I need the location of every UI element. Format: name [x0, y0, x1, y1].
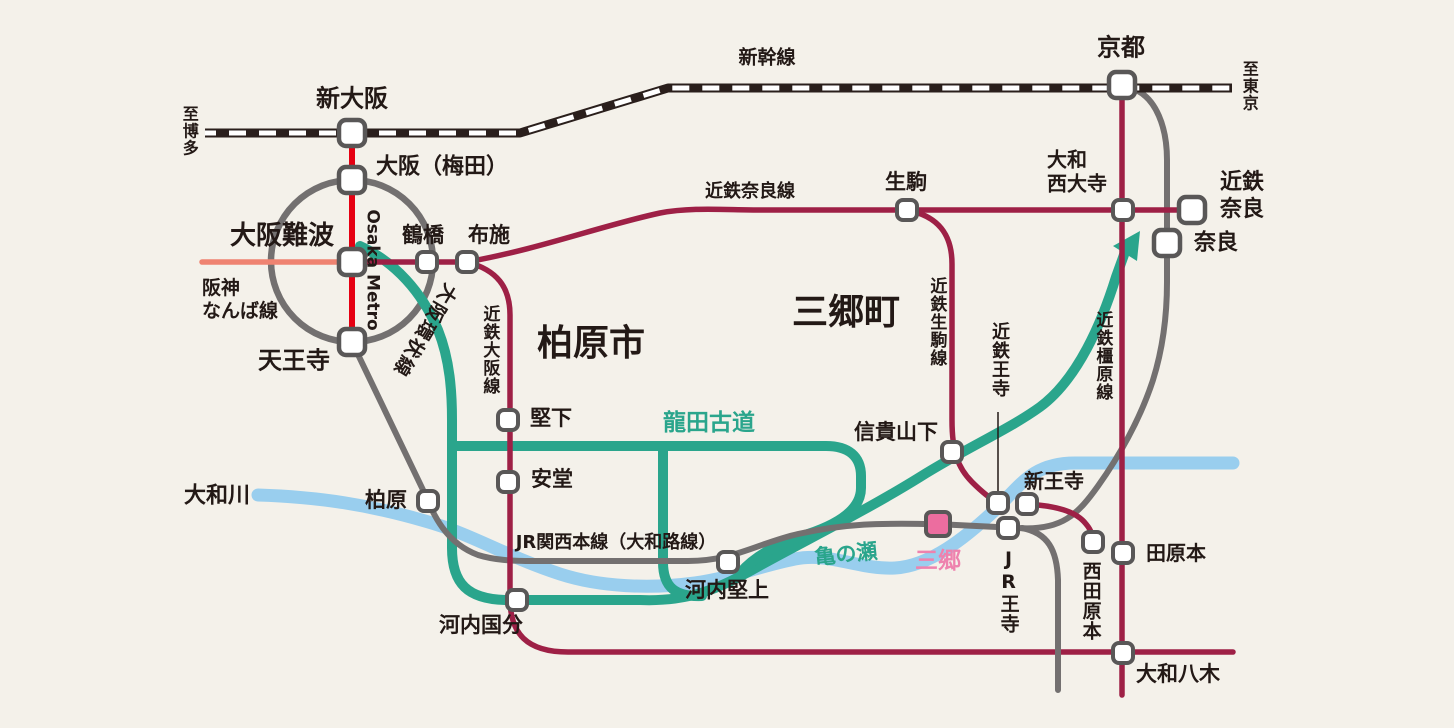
jr-oji-label: JR王寺 [996, 548, 1019, 634]
station-katashimo [498, 410, 518, 430]
tatsuta-kodo-road-inner [663, 446, 702, 596]
station-kintetsu-nara [1179, 197, 1205, 223]
station-kawachi-kokubu [507, 590, 527, 610]
railway-route-map: 新幹線 至博多 至東京 新大阪 京都 大阪（梅田） 大阪難波 阪神 なんば線 O… [0, 0, 1454, 728]
osaka-namba-label: 大阪難波 [230, 221, 334, 253]
kintetsu-nara-line [467, 209, 1192, 262]
to-tokyo-label: 至東京 [1239, 61, 1259, 112]
station-tsuruhashi [417, 252, 437, 272]
kintetsu-oji-label: 近鉄王寺 [988, 322, 1010, 398]
sango-station-label: 三郷 [915, 547, 961, 575]
station-osaka-umeda [339, 167, 365, 193]
kintetsu-osaka-line-label: 近鉄大阪線 [479, 305, 500, 395]
shigisanshita-label: 信貴山下 [854, 420, 938, 446]
to-hakata-label: 至博多 [179, 106, 199, 157]
yamato-saidaiji-label: 大和 西大寺 [1047, 148, 1107, 197]
station-shigisanshita [942, 442, 962, 462]
station-fuse [457, 252, 477, 272]
kintetsu-nara-line-label: 近鉄奈良線 [705, 181, 795, 203]
station-ikoma [897, 200, 917, 220]
shin-osaka-label: 新大阪 [316, 84, 388, 113]
station-kyoto [1109, 72, 1135, 98]
kyoto-label: 京都 [1097, 33, 1145, 62]
osaka-metro-label: Osaka Metro [362, 209, 383, 330]
ando-label: 安堂 [531, 467, 573, 493]
station-shin-osaka [339, 120, 365, 146]
station-kawachi-katakami [718, 552, 738, 572]
sango-town-label: 三郷町 [792, 291, 900, 335]
station-tennoji [339, 329, 365, 355]
station-sango [926, 512, 950, 536]
station-shin-oji [1017, 494, 1037, 514]
map-lines-layer [0, 0, 1454, 728]
kintetsu-nara-label: 近鉄 奈良 [1220, 170, 1264, 224]
shin-oji-label: 新王寺 [1024, 469, 1084, 493]
kintetsu-kashihara-line-label: 近鉄橿原線 [1092, 311, 1113, 401]
yamato-yagi-label: 大和八木 [1136, 662, 1220, 688]
tatsuta-kodo-label: 龍田古道 [663, 409, 755, 437]
nara-label: 奈良 [1194, 231, 1238, 258]
station-nishi-tawaramoto [1083, 532, 1103, 552]
yamato-river-label: 大和川 [184, 484, 250, 511]
station-yamato-saidaiji [1113, 200, 1133, 220]
jr-kansai-line-label: JR関西本線（大和路線） [516, 532, 717, 554]
station-tawaramoto [1113, 543, 1133, 563]
kawachi-kokubu-label: 河内国分 [439, 613, 523, 639]
jr-south-branch [1022, 528, 1058, 690]
station-nara [1154, 230, 1180, 256]
kashiwara-city-label: 柏原市 [537, 322, 645, 366]
tennoji-label: 天王寺 [258, 346, 330, 375]
tawaramoto-label: 田原本 [1146, 541, 1206, 565]
station-jr-oji [998, 518, 1018, 538]
station-yamato-yagi [1113, 643, 1133, 663]
ikoma-label: 生駒 [885, 170, 927, 196]
station-kashiwara [418, 491, 438, 511]
station-ando [498, 472, 518, 492]
tsuruhashi-label: 鶴橋 [402, 223, 444, 249]
fuse-label: 布施 [468, 223, 510, 249]
kashiwara-station-label: 柏原 [365, 488, 407, 514]
kintetsu-ikoma-line-label: 近鉄生駒線 [926, 277, 947, 367]
katashimo-label: 堅下 [530, 406, 572, 432]
kawachi-katakami-label: 河内堅上 [685, 578, 769, 604]
nishi-tawaramoto-label: 西田原本 [1078, 561, 1101, 641]
shinkansen-label: 新幹線 [738, 46, 795, 69]
osaka-umeda-label: 大阪（梅田） [376, 155, 508, 182]
station-kintetsu-oji [988, 493, 1008, 513]
hanshin-namba-line-label: 阪神 なんば線 [202, 277, 278, 323]
